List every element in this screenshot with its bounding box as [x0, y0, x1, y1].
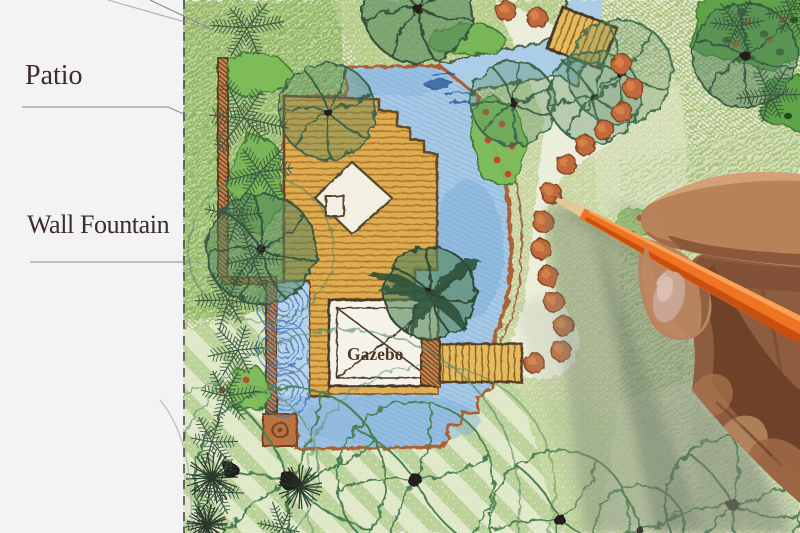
svg-text:Wall Fountain: Wall Fountain	[27, 210, 170, 239]
svg-text:Patio: Patio	[25, 60, 83, 91]
